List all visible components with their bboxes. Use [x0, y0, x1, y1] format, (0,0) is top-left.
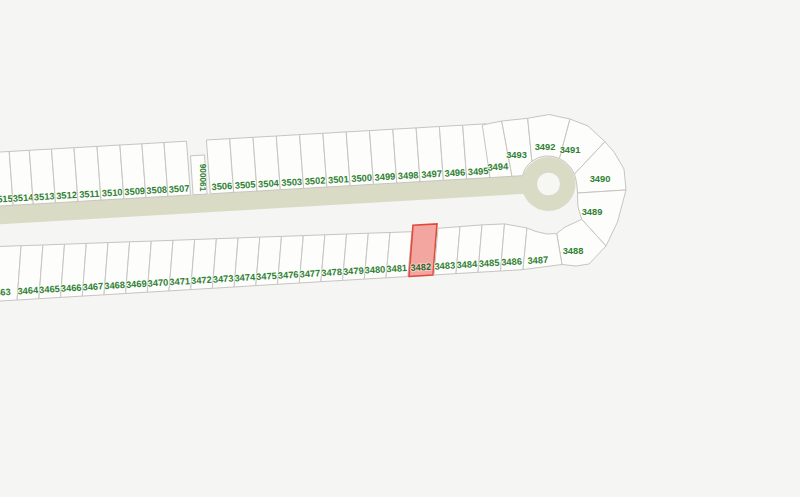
parcel-label-3509: 3509 — [124, 186, 145, 197]
parcel-label-3463: 3463 — [0, 287, 11, 298]
parcel-label-3481: 3481 — [386, 263, 407, 274]
parcel-label-3487: 3487 — [527, 255, 548, 266]
parcel-label-3474: 3474 — [234, 272, 256, 283]
parcel-label-3467: 3467 — [82, 281, 103, 292]
parcel-label-3510: 3510 — [102, 187, 123, 198]
parcel-label-900061: 900061 — [198, 164, 208, 192]
parcel-label-3495: 3495 — [468, 166, 489, 177]
parcel-label-3502: 3502 — [304, 175, 325, 186]
parcel-label-3497: 3497 — [421, 169, 442, 180]
parcel-label-3468: 3468 — [104, 280, 125, 291]
parcel-label-3491: 3491 — [560, 145, 581, 155]
parcel-label-3492: 3492 — [535, 142, 556, 152]
parcel-label-3513: 3513 — [34, 191, 55, 202]
parcel-label-3512: 3512 — [56, 190, 77, 201]
culdesac-island — [537, 172, 561, 196]
parcel-label-3473: 3473 — [212, 273, 233, 284]
parcel-label-3477: 3477 — [299, 268, 320, 279]
parcel-label-3494: 3494 — [487, 161, 509, 172]
parcel-label-3507: 3507 — [168, 183, 189, 194]
parcel-label-3465: 3465 — [39, 284, 60, 295]
parcel-label-3496: 3496 — [444, 167, 465, 178]
parcel-label-3479: 3479 — [343, 266, 364, 277]
parcel-label-3511: 3511 — [79, 189, 100, 200]
parcel-label-3476: 3476 — [278, 270, 299, 281]
parcel-label-3482: 3482 — [410, 262, 431, 273]
parcel-label-3505: 3505 — [235, 180, 256, 191]
parcel-label-3493: 3493 — [506, 150, 527, 160]
parcel-label-3485: 3485 — [478, 258, 499, 269]
parcel-label-3471: 3471 — [169, 276, 190, 287]
parcel-label-3475: 3475 — [256, 271, 277, 282]
parcel-label-3498: 3498 — [398, 170, 419, 181]
parcel-label-3469: 3469 — [126, 279, 147, 290]
parcel-map[interactable]: 3515351435133512351135103509350835079000… — [0, 0, 800, 497]
parcel-label-3480: 3480 — [364, 264, 385, 275]
parcel-label-3488: 3488 — [563, 246, 584, 256]
parcel-label-3486: 3486 — [501, 256, 522, 267]
parcel-label-3472: 3472 — [191, 275, 212, 286]
parcel-label-3466: 3466 — [61, 283, 82, 294]
parcel-label-3478: 3478 — [321, 267, 342, 278]
parcel-label-3484: 3484 — [456, 259, 478, 270]
parcel-label-3500: 3500 — [351, 173, 372, 184]
map-viewport[interactable]: 3515351435133512351135103509350835079000… — [0, 0, 800, 497]
parcel-label-3499: 3499 — [374, 171, 395, 182]
parcel-label-3504: 3504 — [258, 178, 280, 189]
parcel-label-3514: 3514 — [12, 192, 34, 203]
parcel-label-3501: 3501 — [328, 174, 349, 185]
parcel-label-3470: 3470 — [147, 277, 168, 288]
parcel-label-3464: 3464 — [17, 285, 39, 296]
parcel-label-3490: 3490 — [590, 174, 611, 184]
parcel-label-3489: 3489 — [582, 207, 603, 217]
parcel-label-3508: 3508 — [146, 185, 167, 196]
parcel-label-3515: 3515 — [0, 194, 13, 205]
parcel-label-3483: 3483 — [434, 260, 455, 271]
parcel-label-3506: 3506 — [211, 181, 232, 192]
parcel-label-3503: 3503 — [281, 177, 302, 188]
